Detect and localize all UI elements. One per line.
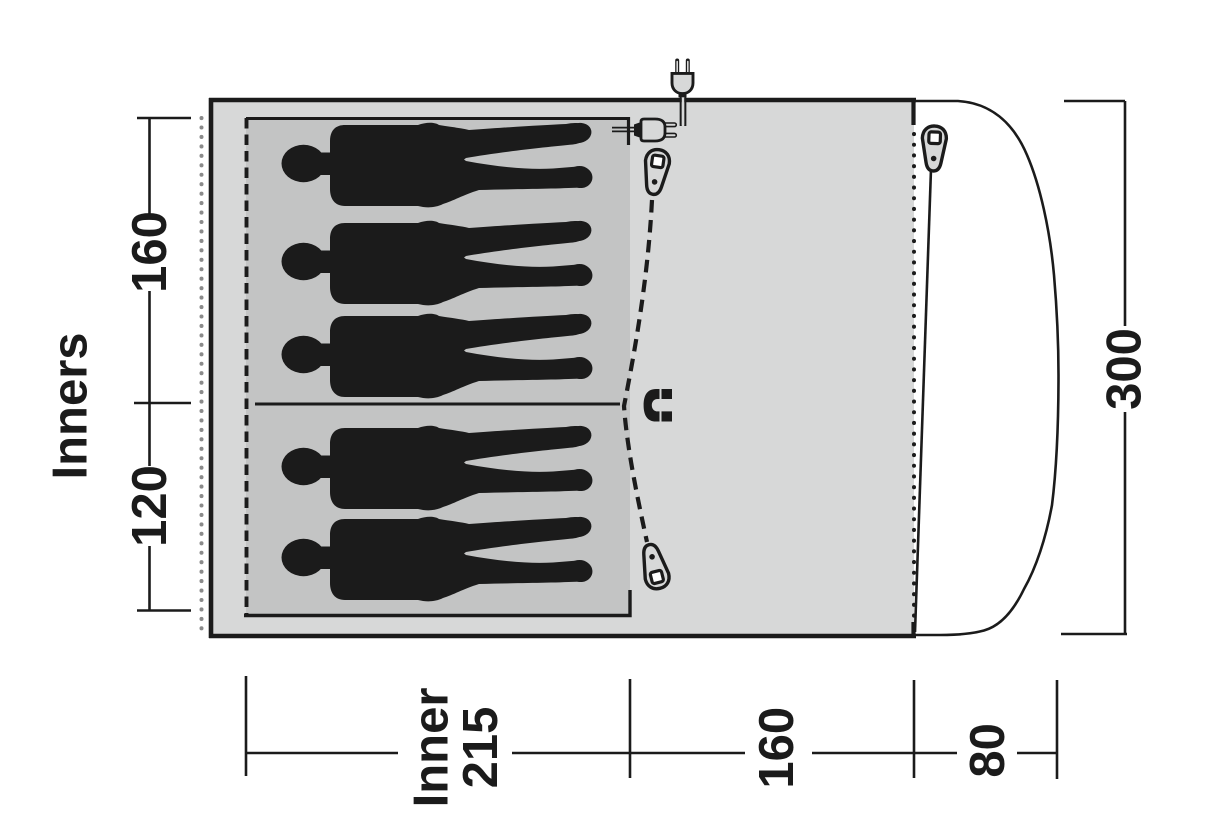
- svg-text:Inners: Inners: [44, 332, 98, 479]
- svg-text:160: 160: [750, 707, 804, 789]
- svg-text:160: 160: [123, 211, 177, 293]
- svg-text:80: 80: [961, 723, 1015, 778]
- svg-text:Inner215: Inner215: [405, 688, 509, 808]
- svg-text:120: 120: [123, 465, 177, 547]
- svg-text:300: 300: [1098, 328, 1152, 410]
